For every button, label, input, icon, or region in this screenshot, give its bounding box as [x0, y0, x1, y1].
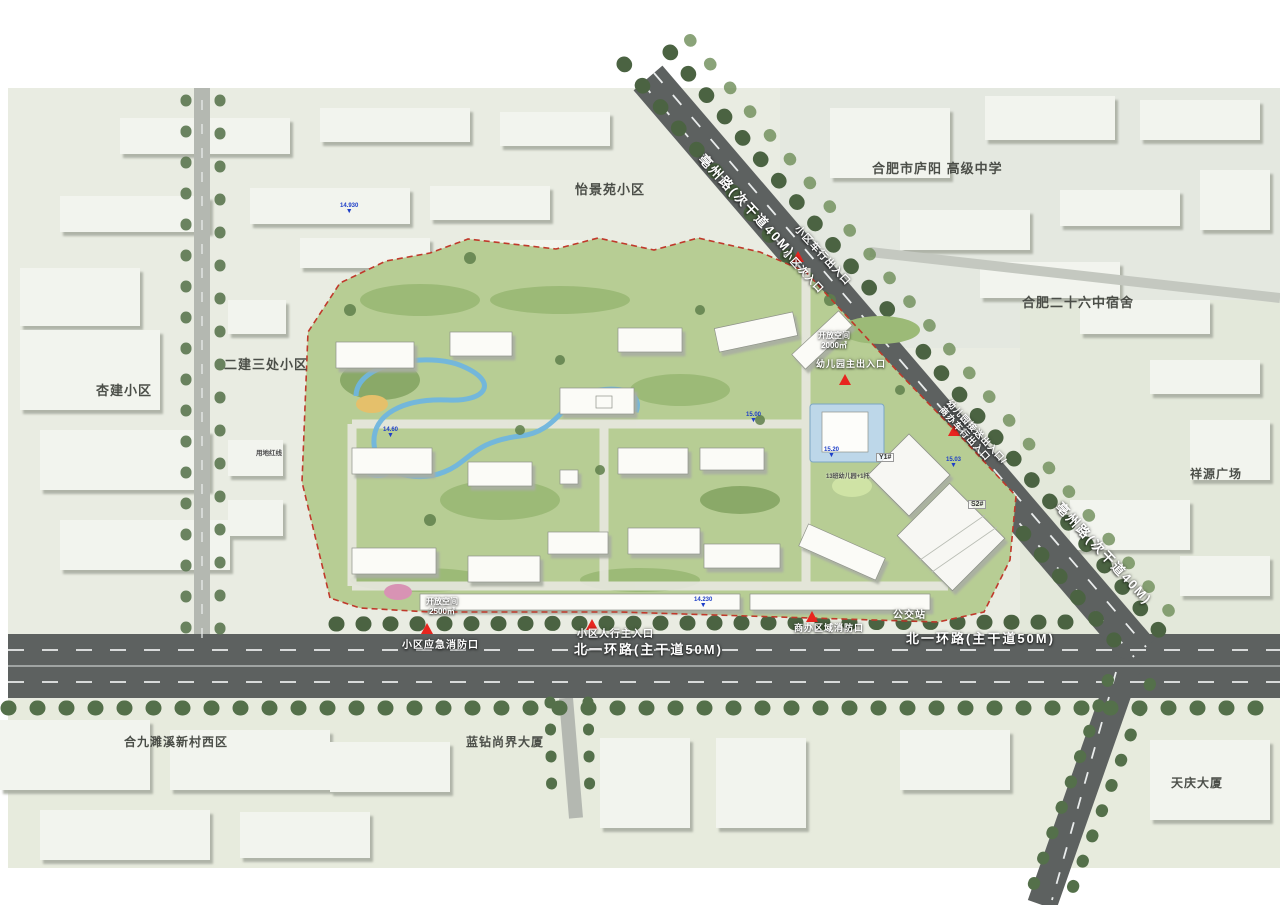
- elevation-triangle-icon: ▼: [828, 452, 835, 459]
- label-tianqing-tower: 天庆大厦: [1171, 777, 1223, 791]
- label-building-y1: Y1#: [876, 453, 894, 462]
- playground-pink: [384, 584, 412, 600]
- label-open-space-2000-l2: 2000㎡: [818, 341, 850, 351]
- label-xingjian: 杏建小区: [96, 384, 152, 399]
- elevation-triangle-icon: ▼: [950, 462, 957, 469]
- kindergarten-building: [810, 404, 884, 462]
- label-pedestrian-main-entry: 小区人行主入口: [577, 629, 654, 641]
- label-open-space-2500-l1: 开放空间: [426, 597, 458, 607]
- label-north-ring-east: 北一环路(主干道50M): [906, 632, 1055, 647]
- label-bus-stop: 公交站: [893, 610, 926, 622]
- label-kg-main-entry: 幼儿园主出入口: [816, 359, 886, 369]
- label-open-space-2500: 开放空间 2500㎡: [426, 597, 458, 616]
- elevation-triangle-icon: ▼: [750, 417, 757, 424]
- label-kindergarten: 13班幼儿园+1托: [826, 471, 870, 480]
- label-building-s2: S2#: [968, 500, 986, 509]
- label-no26-dorm: 合肥二十六中宿舍: [1022, 296, 1134, 311]
- label-open-space-2000: 开放空间 2000㎡: [818, 331, 850, 350]
- label-emergency-fire-access: 小区应急消防口: [402, 640, 479, 652]
- label-open-space-2000-l1: 开放空间: [818, 331, 850, 341]
- label-lanzuan-tower: 蓝钻尚界大厦: [466, 736, 544, 750]
- label-hejiu-suixi: 合九濉溪新村西区: [124, 736, 228, 750]
- label-open-space-2500-l2: 2500㎡: [426, 607, 458, 617]
- elevation-marker: 14.60▼: [383, 427, 398, 439]
- elevation-marker: 14.230▼: [694, 597, 712, 609]
- elevation-marker: 15.03▼: [946, 457, 961, 469]
- elevation-triangle-icon: ▼: [700, 602, 707, 609]
- elevation-marker: 14.930▼: [340, 203, 358, 215]
- label-yijingyuan: 怡景苑小区: [575, 183, 645, 198]
- label-luyang-school: 合肥市庐阳 高级中学: [872, 162, 1003, 177]
- elevation-triangle-icon: ▼: [387, 432, 394, 439]
- elevation-marker: 15.20▼: [824, 447, 839, 459]
- label-biz-fire-access: 商办区域消防口: [794, 623, 864, 633]
- master-plan-drawing: [0, 0, 1280, 905]
- label-red-line: 用地红线: [256, 447, 282, 457]
- playground-yellow: [356, 395, 388, 413]
- label-north-ring-west: 北一环路(主干道50M): [574, 643, 723, 658]
- label-erjian-sanchu: 二建三处小区: [224, 358, 308, 373]
- label-xiangyuan-plaza: 祥源广场: [1190, 468, 1242, 482]
- elevation-triangle-icon: ▼: [346, 208, 353, 215]
- elevation-marker: 15.00▼: [746, 412, 761, 424]
- site-plan-canvas: 怡景苑小区 合肥市庐阳 高级中学 合肥二十六中宿舍 祥源广场 二建三处小区 杏建…: [0, 0, 1280, 905]
